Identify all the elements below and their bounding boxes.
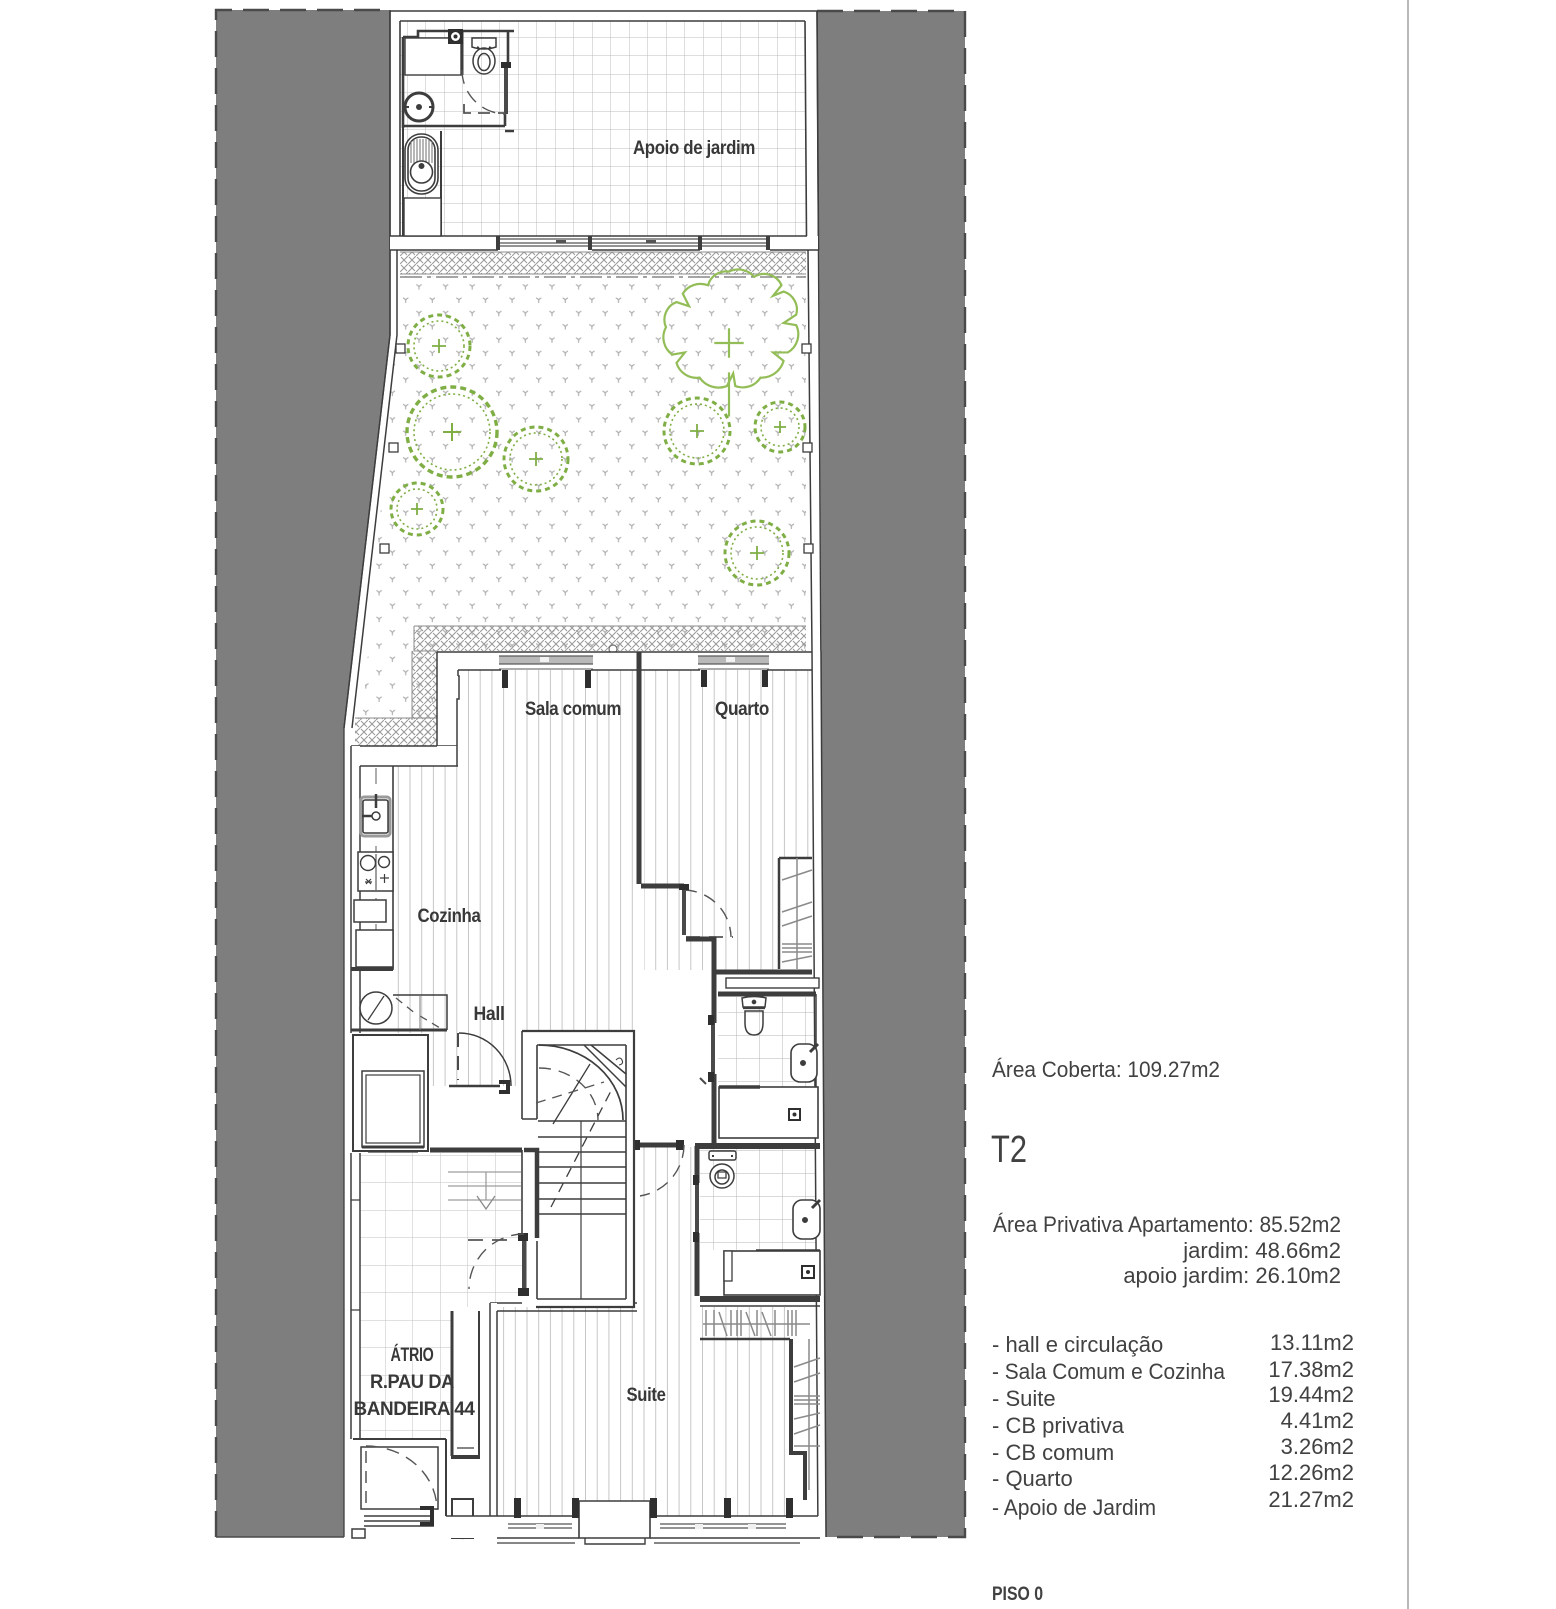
svg-text:- CB comum: - CB comum <box>992 1440 1114 1465</box>
svg-text:21.27m2: 21.27m2 <box>1268 1487 1354 1512</box>
svg-text:Cozinha: Cozinha <box>418 905 481 927</box>
svg-text:3.26m2: 3.26m2 <box>1281 1434 1354 1459</box>
svg-text:Área Coberta: 109.27m2: Área Coberta: 109.27m2 <box>992 1057 1220 1082</box>
svg-text:- Sala Comum e Cozinha: - Sala Comum e Cozinha <box>992 1359 1226 1384</box>
svg-text:Sala comum: Sala comum <box>525 698 621 720</box>
svg-text:- hall e circulação: - hall e circulação <box>992 1332 1163 1357</box>
svg-text:- Quarto: - Quarto <box>992 1466 1073 1491</box>
svg-text:jardim: 48.66m2: jardim: 48.66m2 <box>1182 1238 1341 1263</box>
svg-text:17.38m2: 17.38m2 <box>1268 1357 1354 1382</box>
svg-text:R.PAU DA: R.PAU DA <box>370 1372 455 1393</box>
svg-text:Hall: Hall <box>474 1003 505 1025</box>
svg-text:- Apoio de Jardim: - Apoio de Jardim <box>992 1495 1156 1520</box>
svg-text:BANDEIRA 44: BANDEIRA 44 <box>354 1399 476 1420</box>
svg-text:- Suite: - Suite <box>992 1386 1056 1411</box>
svg-text:Quarto: Quarto <box>715 698 769 720</box>
svg-text:Suite: Suite <box>627 1384 666 1406</box>
svg-text:apoio jardim: 26.10m2: apoio jardim: 26.10m2 <box>1123 1263 1341 1288</box>
svg-text:PISO 0: PISO 0 <box>992 1584 1043 1605</box>
svg-text:13.11m2: 13.11m2 <box>1270 1330 1354 1355</box>
svg-text:Apoio de jardim: Apoio de jardim <box>633 137 755 159</box>
svg-text:ÁTRIO: ÁTRIO <box>391 1344 434 1366</box>
svg-text:Área Privativa Apartamento: 85: Área Privativa Apartamento: 85.52m2 <box>993 1212 1341 1237</box>
svg-text:4.41m2: 4.41m2 <box>1281 1408 1354 1433</box>
svg-text:T2: T2 <box>991 1129 1027 1171</box>
svg-text:12.26m2: 12.26m2 <box>1268 1460 1354 1485</box>
svg-text:19.44m2: 19.44m2 <box>1268 1382 1354 1407</box>
svg-text:- CB privativa: - CB privativa <box>992 1413 1125 1438</box>
